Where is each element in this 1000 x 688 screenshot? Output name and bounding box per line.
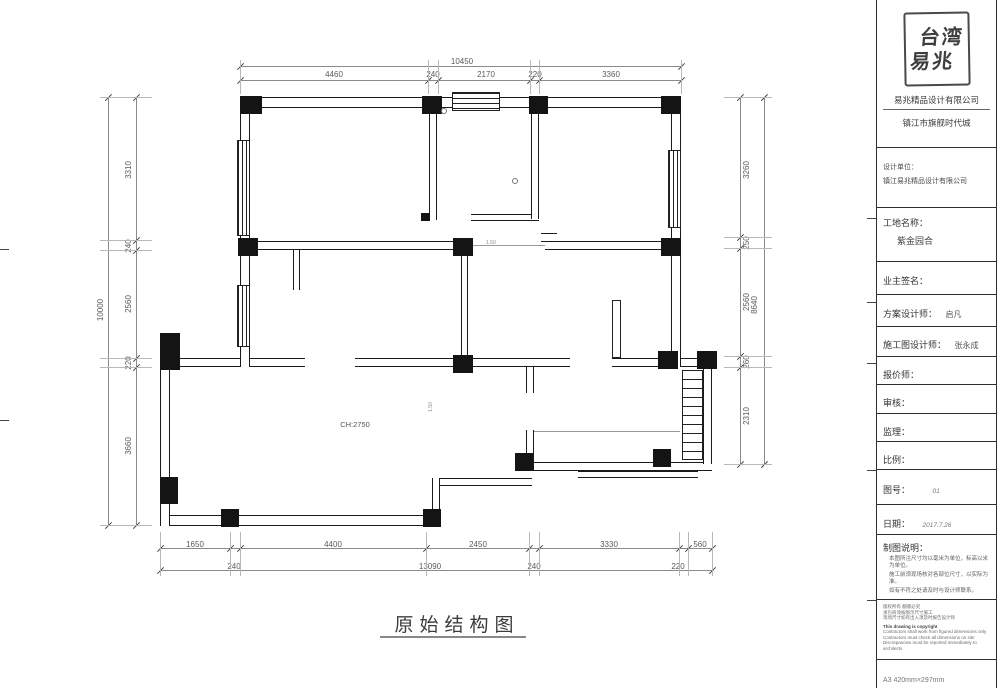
site-name-cell: 工地名称： 紫金园合 <box>877 208 996 262</box>
wall-upper-return <box>471 214 539 221</box>
figure-no-cell: 图号： 01 <box>877 470 996 505</box>
extension-line <box>679 532 680 576</box>
wall-bay-right <box>703 367 712 464</box>
dimension-label: 2450 <box>458 540 498 550</box>
company-stamp-logo: 台湾 易兆 <box>903 11 970 86</box>
extension-line <box>428 60 429 94</box>
copyright-cn-line: 现场尺寸如有出入须及时报告设计师 <box>883 615 990 621</box>
dimension-label: 220 <box>658 562 698 572</box>
extension-line <box>539 60 540 94</box>
door-knob-symbol <box>441 108 447 114</box>
wall-right-upper <box>671 97 681 367</box>
site-name-value: 紫金园合 <box>897 234 990 247</box>
extension-line <box>100 240 152 241</box>
quoter-cell: 报价师： <box>877 357 996 385</box>
extension-line <box>240 60 241 94</box>
wall-mid1-jog <box>541 233 557 242</box>
extension-line <box>230 532 231 576</box>
extension-line <box>530 60 531 94</box>
scale-label: 比例： <box>883 455 910 465</box>
notes-line: 如有不符之处请及时与设计师联系。 <box>889 588 990 595</box>
dimension-label: 3360 <box>591 70 631 80</box>
dimension-label: 10000 <box>96 290 106 330</box>
wall-lowmid-a <box>526 367 534 393</box>
design-unit-value: 镇江易兆精品设计有限公司 <box>883 176 990 186</box>
dimension-label: 1650 <box>175 540 215 550</box>
fold-mark <box>867 363 876 364</box>
scheme-designer-label: 方案设计师： <box>883 309 937 319</box>
stamp-text: 易兆 <box>905 48 969 73</box>
date-value: 2017.7.26 <box>922 522 951 529</box>
scheme-designer-value: 启凡 <box>945 310 961 319</box>
extension-line <box>688 532 689 576</box>
title-block: 台湾 易兆 易兆精品设计有限公司 镇江市旗舰时代城 设计单位： 镇江易兆精品设计… <box>876 0 997 688</box>
dimension-label: 2560 <box>742 282 752 322</box>
dimension-label: 3260 <box>742 150 752 190</box>
construction-designer-label: 施工图设计师： <box>883 340 946 350</box>
column <box>221 509 239 527</box>
dimension-label: 2170 <box>466 70 506 80</box>
extension-line <box>724 367 772 368</box>
cad-sheet: { "sidebar": { "stamp": { "line1": "台湾",… <box>0 0 1000 688</box>
dimension-label: 240 <box>124 226 134 266</box>
extension-line <box>724 356 772 357</box>
wall-stub-b <box>531 114 539 219</box>
column <box>529 96 548 114</box>
dimension-label: 240 <box>214 562 254 572</box>
column <box>453 238 473 256</box>
wall-stub-a-foot <box>421 213 430 221</box>
copyright-en-line: Discrepancies must be reported immediate… <box>883 640 990 651</box>
column <box>653 449 671 467</box>
scale-cell: 比例： <box>877 442 996 470</box>
window-top <box>452 92 500 111</box>
notes-title: 制图说明： <box>883 541 990 554</box>
figure-no-label: 图号： <box>883 485 910 495</box>
extension-line <box>100 358 152 359</box>
audit-cell: 审核： <box>877 385 996 414</box>
dimension-label: 4400 <box>313 540 353 550</box>
column <box>422 96 442 114</box>
column <box>238 238 258 256</box>
dimension-label: 3330 <box>589 540 629 550</box>
wall-lowerright-bottom <box>530 462 712 471</box>
supervision-label: 监理： <box>883 427 910 437</box>
door-size-label: 1.50 <box>428 402 434 412</box>
project-city: 镇江市旗舰时代城 <box>881 117 992 129</box>
extension-line <box>160 532 161 576</box>
wall-bottom <box>160 515 441 526</box>
owner-signature-label: 业主签名： <box>883 276 928 286</box>
dimension-label: 260 <box>742 342 752 382</box>
fold-mark <box>0 420 9 421</box>
audit-label: 审核： <box>883 398 910 408</box>
design-unit-cell: 设计单位： 镇江易兆精品设计有限公司 <box>877 148 996 208</box>
dimension-line <box>740 97 741 464</box>
dimension-label: 2310 <box>742 396 752 436</box>
dimension-label: 10450 <box>442 57 482 67</box>
wall-seat-bar <box>578 471 698 478</box>
supervision-cell: 监理： <box>877 414 996 442</box>
extension-line <box>100 97 152 98</box>
column <box>697 351 717 369</box>
extension-line <box>529 532 530 576</box>
figure-no-value: 01 <box>932 488 939 495</box>
construction-designer-cell: 施工图设计师： 张永成 <box>877 327 996 357</box>
threshold-line <box>473 245 545 246</box>
wall-stub-c <box>293 250 300 290</box>
column <box>160 477 178 504</box>
extension-line <box>724 464 772 465</box>
window-right-upper <box>668 150 681 228</box>
ceiling-height-label: CH:2750 <box>325 420 385 430</box>
paper-size-cell: A3 420mm×297mm <box>877 660 996 688</box>
extension-line <box>100 367 152 368</box>
dimension-line <box>160 548 712 549</box>
wall-mid2-a <box>160 358 305 367</box>
date-cell: 日期： 2017.7.26 <box>877 505 996 535</box>
owner-signature-cell: 业主签名： <box>877 262 996 295</box>
fold-mark <box>867 218 876 219</box>
drawing-title: 原始结构图 <box>372 610 542 637</box>
date-label: 日期： <box>883 519 910 529</box>
fold-mark <box>867 302 876 303</box>
construction-designer-value: 张永成 <box>954 341 978 350</box>
extension-line <box>539 532 540 576</box>
fold-mark <box>0 249 9 250</box>
dimension-line <box>240 80 681 81</box>
fold-mark <box>867 600 876 601</box>
column <box>240 96 262 114</box>
dimension-label: 3660 <box>124 426 134 466</box>
extension-line <box>100 250 152 251</box>
dimension-label: 13090 <box>410 562 450 572</box>
dimension-label: 240 <box>413 70 453 80</box>
stairs-symbol <box>682 370 703 460</box>
quoter-label: 报价师： <box>883 370 919 380</box>
dimension-label: 2560 <box>124 284 134 324</box>
extension-line <box>681 60 682 94</box>
logo-cell: 台湾 易兆 易兆精品设计有限公司 镇江市旗舰时代城 <box>877 0 996 148</box>
dimension-label: 220 <box>515 70 555 80</box>
counter-line <box>534 431 680 432</box>
wall-stub-a <box>429 108 437 220</box>
extension-line <box>438 60 439 94</box>
extension-line <box>724 237 772 238</box>
fold-mark <box>867 470 876 471</box>
extension-line <box>724 97 772 98</box>
copyright-en-line: Contractors shall work from figured dime… <box>883 629 990 635</box>
site-name-label: 工地名称： <box>883 216 990 229</box>
dimension-label: 4460 <box>314 70 354 80</box>
stamp-text: 台湾 <box>904 24 968 49</box>
door-knob-symbol <box>512 178 518 184</box>
extension-line <box>100 525 152 526</box>
extension-line <box>426 532 427 576</box>
dimension-line <box>764 97 765 464</box>
paper-size-note: A3 420mm×297mm <box>883 677 944 684</box>
door-size-label: 1.50 <box>486 240 496 246</box>
column <box>658 351 678 369</box>
extension-line <box>724 248 772 249</box>
dimension-label: 3310 <box>124 150 134 190</box>
dimension-line <box>108 97 109 525</box>
wall-step-h <box>432 478 532 486</box>
window-left-upper <box>237 140 250 236</box>
dimension-label: 240 <box>514 562 554 572</box>
notes-cell: 制图说明： 本图所注尺寸均以毫米为单位，标高以米为单位。 施工前须现场核对各部位… <box>877 535 996 600</box>
notes-line: 施工前须现场核对各部位尺寸，以实际为准。 <box>889 572 990 586</box>
dimension-label: 250 <box>742 223 752 263</box>
design-unit-label: 设计单位： <box>883 162 990 172</box>
column <box>160 333 180 370</box>
extension-line <box>712 532 713 576</box>
column <box>453 355 473 373</box>
copyright-cell: 版权所有 翻版必究 承包商须按图示尺寸施工 现场尺寸如有出入须及时报告设计师 T… <box>877 600 996 660</box>
column <box>515 453 533 471</box>
window-left-lower <box>237 285 250 347</box>
extension-line <box>240 532 241 576</box>
column <box>661 238 681 256</box>
wall-mid1-left <box>240 241 455 250</box>
dimension-line <box>136 97 137 525</box>
notes-line: 本图所注尺寸均以毫米为单位，标高以米为单位。 <box>889 556 990 570</box>
scheme-designer-cell: 方案设计师： 启凡 <box>877 295 996 327</box>
drawing-title-underline <box>380 636 526 638</box>
wall-mid-partition <box>461 250 468 360</box>
column <box>423 509 441 527</box>
slider-door <box>612 300 621 358</box>
column <box>661 96 681 114</box>
company-name: 易兆精品设计有限公司 <box>883 94 990 110</box>
dimension-label: 220 <box>124 343 134 383</box>
